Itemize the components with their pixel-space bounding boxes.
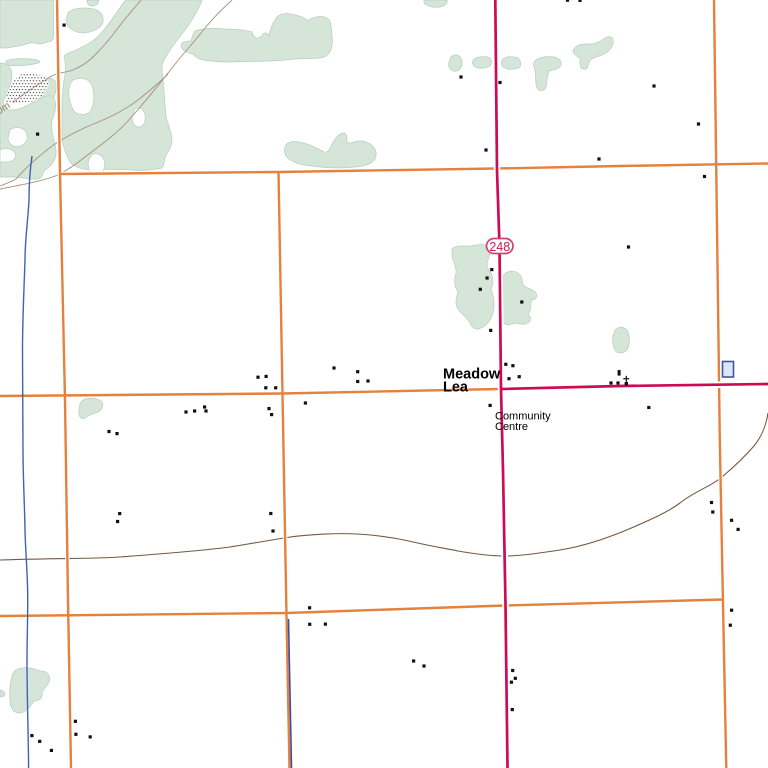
- svg-text:Centre: Centre: [495, 421, 528, 433]
- svg-text:248: 248: [489, 240, 510, 254]
- svg-text:Lea: Lea: [443, 380, 469, 396]
